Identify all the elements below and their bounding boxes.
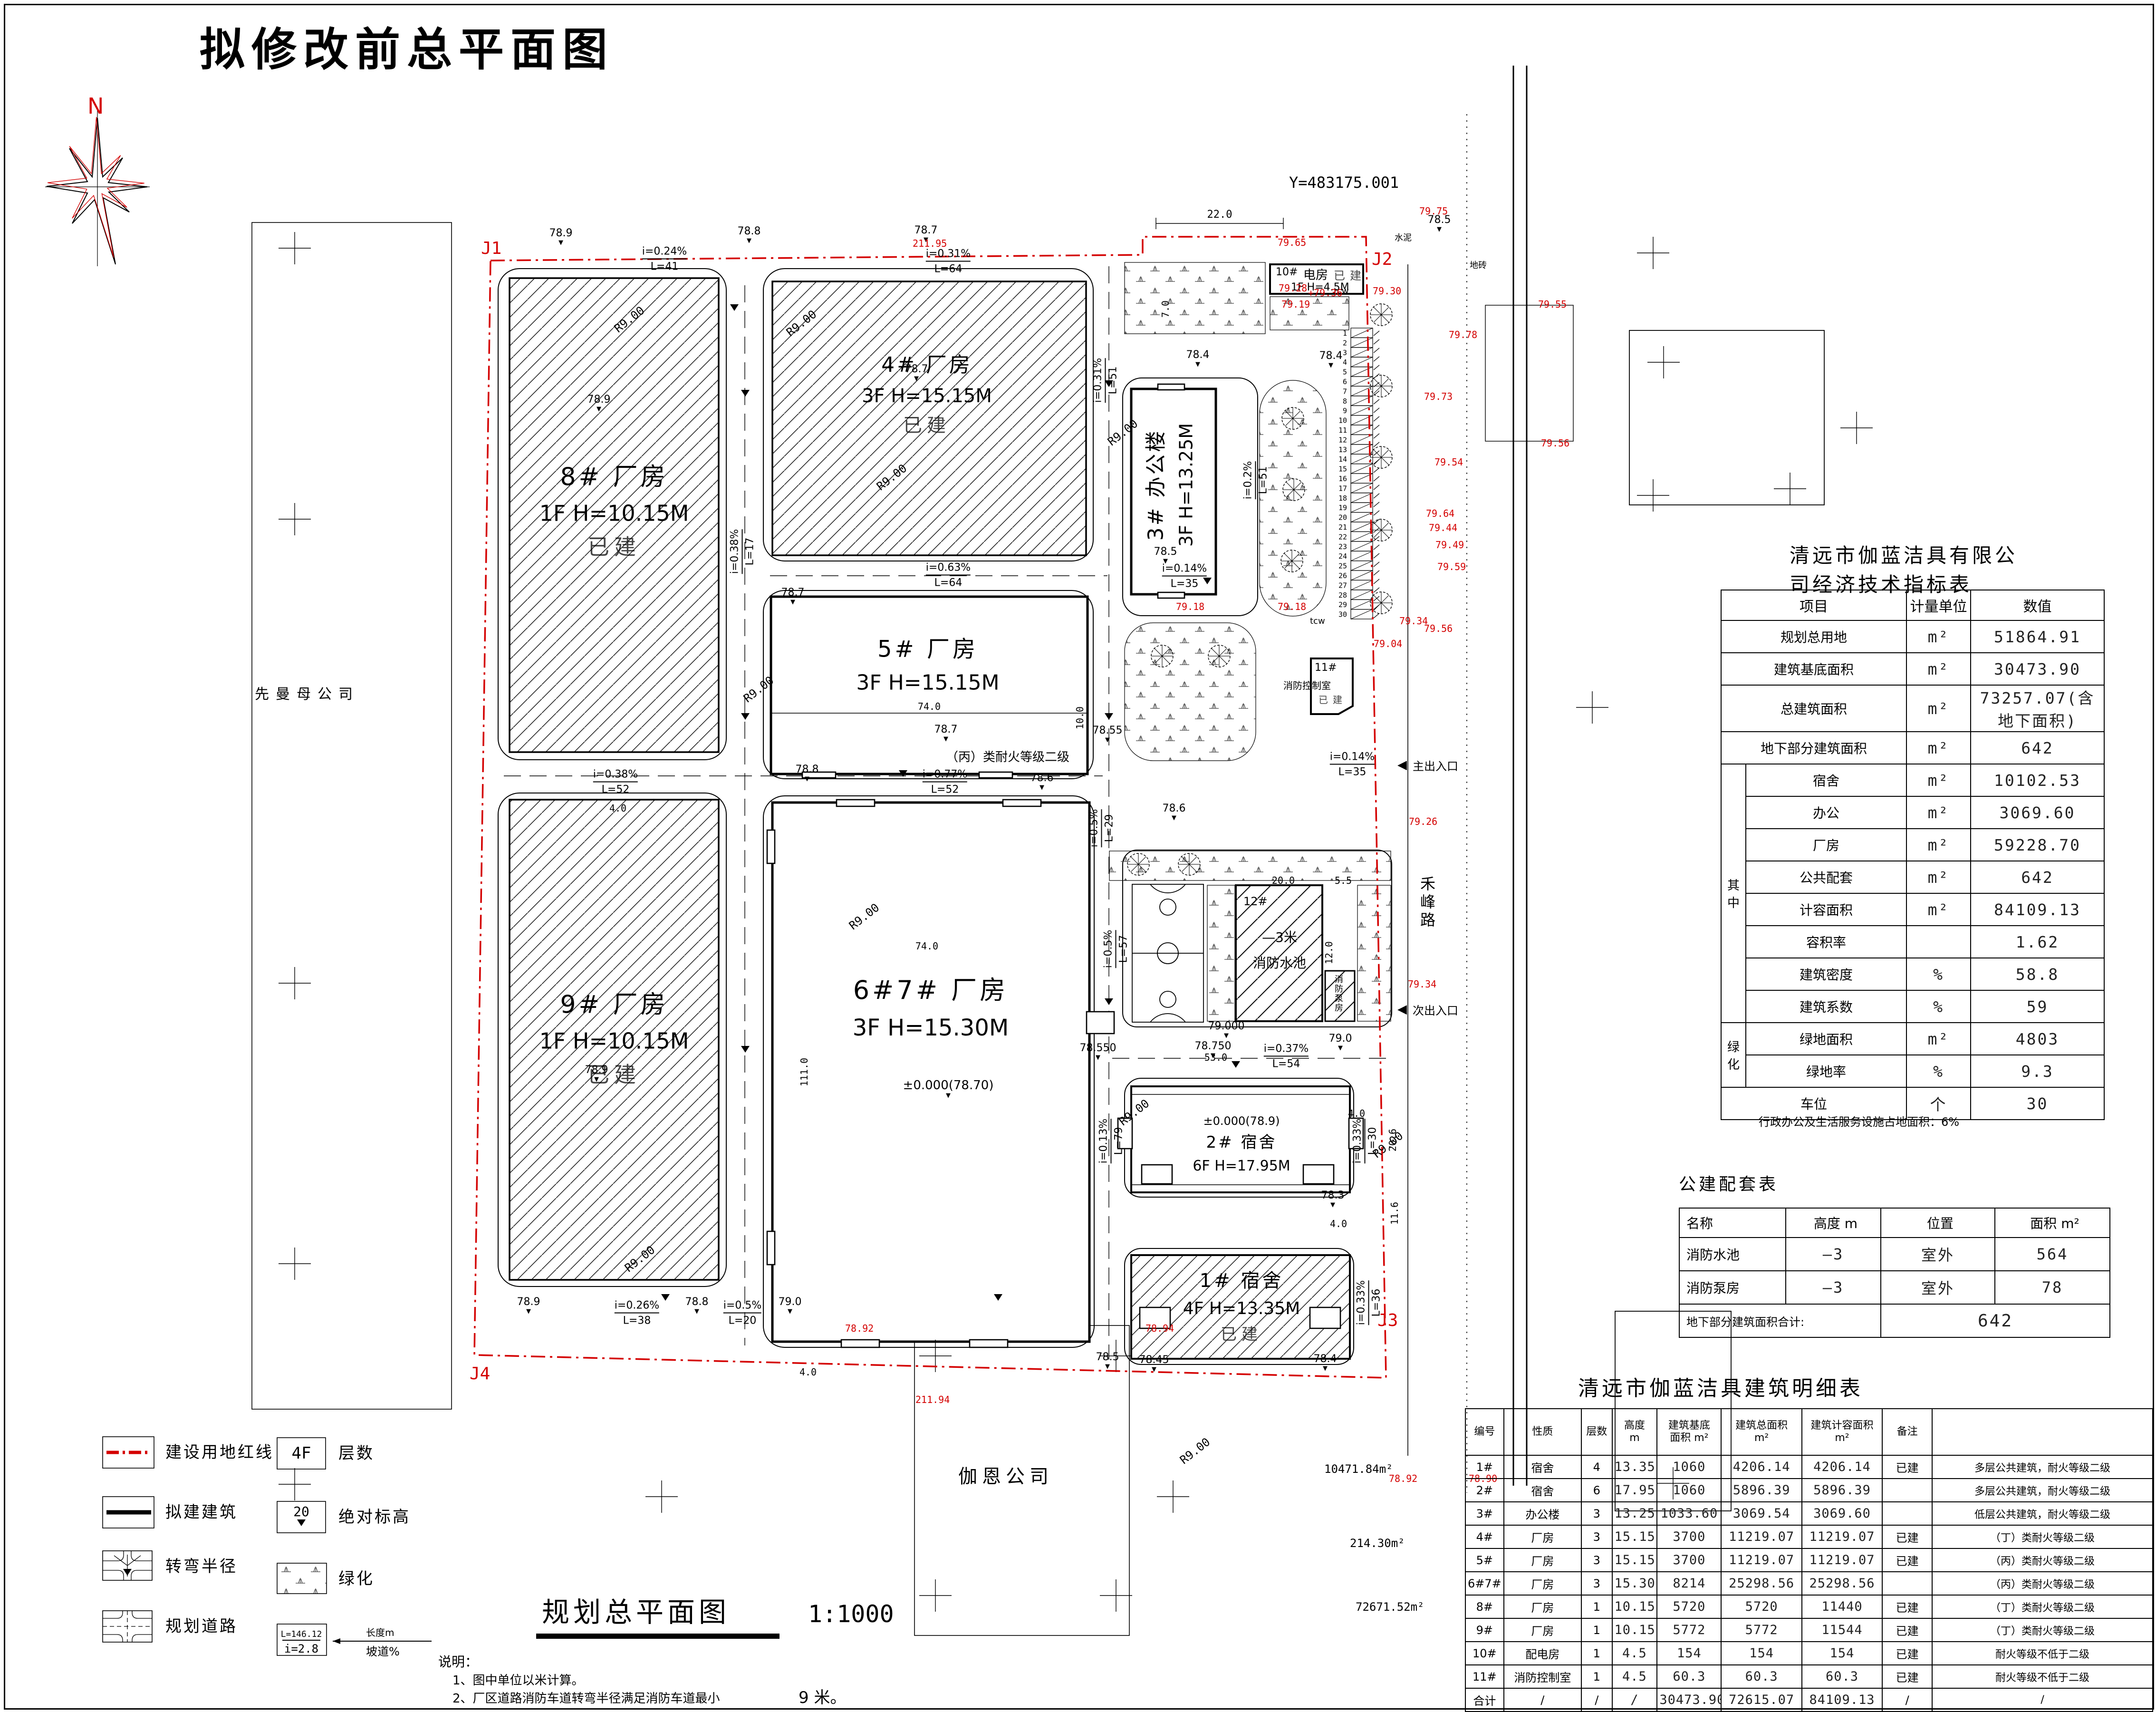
dimension: 4.0	[1348, 1109, 1365, 1118]
detail-cell: 耐火等级不低于二级	[1932, 1665, 2153, 1688]
public-cell: —3	[1786, 1271, 1881, 1304]
public-total-value: 642	[1881, 1304, 2110, 1337]
detail-row: 3#办公楼313.251033.603069.543069.60低层公共建筑，耐…	[1465, 1502, 2153, 1525]
slope-label: i=0.38%L=17	[729, 529, 757, 574]
slope-label: i=0.13%L=79	[1097, 1119, 1126, 1163]
detail-cell: 11219.07	[1721, 1525, 1801, 1548]
spot-elevation: 78.9▼	[585, 1065, 608, 1083]
detail-cell: 5772	[1721, 1618, 1801, 1642]
public-total-label: 地下部分建筑面积合计:	[1679, 1304, 1881, 1337]
detail-cell: 配电房	[1504, 1642, 1581, 1665]
econ-row: 绿化绿地面积m²4803	[1721, 1023, 2104, 1055]
econ-unit-cell: %	[1906, 958, 1971, 990]
detail-cell: （丁）类耐火等级二级	[1932, 1525, 2153, 1548]
detail-cell: 15.30	[1612, 1572, 1657, 1595]
econ-row: 建筑系数%59	[1721, 990, 2104, 1023]
building-6-7-zero-elevation: ±0.000(78.70)▼	[903, 1079, 994, 1099]
parking-stall-number: 1	[1343, 329, 1347, 338]
parking-stall-number: 13	[1338, 445, 1347, 454]
detail-row: 11#消防控制室14.560.360.360.3已建耐火等级不低于二级	[1465, 1665, 2153, 1688]
parking-stall-number: 5	[1343, 368, 1347, 377]
detail-table-title: 清远市伽蓝洁具建筑明细表	[1578, 1371, 1863, 1402]
econ-value-cell: 59228.70	[1971, 829, 2104, 861]
detail-cell: 3069.60	[1802, 1502, 1882, 1525]
detail-cell: 耐火等级不低于二级	[1932, 1642, 2153, 1665]
red-elevation: 78.92	[845, 1324, 874, 1333]
detail-cell: 3700	[1657, 1548, 1721, 1572]
building-11-status: 已建	[1319, 695, 1347, 705]
dimension: 20.6	[1388, 1129, 1397, 1151]
detail-cell	[1882, 1479, 1932, 1502]
parking-stall-number: 17	[1338, 484, 1347, 493]
detail-cell: 1	[1581, 1642, 1612, 1665]
site-plan-sheet: { "page": {"title": "拟修改前总平面图", "y_coord…	[0, 0, 2156, 1712]
parking-stall-number: 7	[1343, 387, 1347, 396]
building-10-name: 电房	[1303, 269, 1328, 281]
dimension: 4.0	[609, 803, 626, 813]
building-5-label: 5# 厂房 3F H=15.15M	[856, 632, 999, 700]
detail-cell: 84109.13	[1802, 1688, 1882, 1712]
detail-row: 8#厂房110.155720572011440已建（丁）类耐火等级二级	[1465, 1595, 2153, 1618]
econ-value-cell: 51864.91	[1971, 620, 2104, 653]
public-facility-table: 名称 高度 m 位置 面积 m² 消防水池—3室外564消防泵房—3室外78 地…	[1679, 1208, 2110, 1338]
detail-cell: /	[1882, 1688, 1932, 1712]
spot-elevation: 78.3▼	[1321, 1190, 1345, 1208]
plan-scale: 1:1000	[808, 1602, 894, 1626]
detail-cell: （丁）类耐火等级二级	[1932, 1595, 2153, 1618]
red-elevation: 79.55	[1538, 300, 1567, 309]
econ-value-cell: 642	[1971, 732, 2104, 764]
legend-symbols	[103, 1437, 432, 1655]
compass-north-label: N	[87, 95, 104, 117]
note-1: 1、图中单位以米计算。	[452, 1674, 584, 1687]
slope-label: i=0.31%L=51	[1092, 358, 1120, 403]
marker-j2: J2	[1372, 251, 1392, 268]
building-5-fire-rating: （丙）类耐火等级二级	[946, 751, 1069, 764]
red-elevation: 79.34	[1408, 979, 1436, 989]
detail-cell	[1882, 1502, 1932, 1525]
econ-value-cell: 9.3	[1971, 1055, 2104, 1087]
main-entrance-icon: ◀	[1397, 759, 1407, 771]
econ-item-cell: 公共配套	[1746, 861, 1906, 893]
secondary-entrance-label: 次出入口	[1413, 1005, 1458, 1016]
spot-elevation: 78.9▼	[549, 228, 573, 246]
public-total-row: 地下部分建筑面积合计: 642	[1679, 1304, 2110, 1337]
spot-elevation: 78.9▼	[587, 395, 611, 412]
detail-cell: 消防控制室	[1504, 1665, 1581, 1688]
spot-elevation: 78.7▼	[905, 364, 928, 382]
legend-elev-label: 绝对标高	[338, 1509, 411, 1525]
legend-green-label: 绿化	[338, 1571, 375, 1587]
spot-elevation: 79.0▼	[779, 1297, 802, 1315]
public-cell: 消防泵房	[1679, 1271, 1786, 1304]
west-neighbor-lot	[252, 222, 452, 1409]
detail-cell: 宿舍	[1504, 1455, 1581, 1479]
dimension: 11.6	[1390, 1202, 1399, 1225]
detail-cell: 25298.56	[1802, 1572, 1882, 1595]
detail-cell: 多层公共建筑，耐火等级二级	[1932, 1479, 2153, 1502]
detail-header-cell: 建筑基底 面积 m²	[1657, 1409, 1721, 1455]
detail-cell: 低层公共建筑，耐火等级二级	[1932, 1502, 2153, 1525]
dimension: 20.0	[1272, 876, 1295, 885]
detail-row: 6#7#厂房315.30821425298.5625298.56（丙）类耐火等级…	[1465, 1572, 2153, 1595]
detail-cell: 25298.56	[1721, 1572, 1801, 1595]
slope-label: i=0.63%L=64	[926, 561, 971, 590]
detail-cell: /	[1504, 1688, 1581, 1712]
detail-cell: （丙）类耐火等级二级	[1932, 1572, 2153, 1595]
spot-elevation: 79.000▼	[1208, 1021, 1245, 1039]
spot-elevation: 78.6▼	[1163, 803, 1186, 821]
retaining-wall-ticks	[1374, 331, 1379, 618]
detail-cell: 4	[1581, 1455, 1612, 1479]
detail-cell: 5772	[1657, 1618, 1721, 1642]
econ-unit-cell: m²	[1906, 829, 1971, 861]
econ-table-footnote: 行政办公及生活服务设施占地面积：6%	[1759, 1116, 1959, 1128]
detail-cell: 1060	[1657, 1479, 1721, 1502]
red-elevation: 79.75	[1419, 206, 1448, 216]
parking-stall-number: 29	[1338, 600, 1347, 609]
econ-unit-cell: m²	[1906, 893, 1971, 926]
building-10-id: 10#	[1276, 267, 1298, 278]
econ-item-cell: 绿地率	[1746, 1055, 1906, 1087]
econ-item-cell: 建筑系数	[1746, 990, 1906, 1023]
detail-cell: 11219.07	[1721, 1548, 1801, 1572]
econ-value-cell: 3069.60	[1971, 796, 2104, 829]
parking-stall-number: 22	[1338, 532, 1347, 541]
detail-cell: 3069.54	[1721, 1502, 1801, 1525]
parking-stall-number: 15	[1338, 465, 1347, 474]
slope-label: i=0.31%L=64	[926, 248, 971, 276]
econ-item-cell: 宿舍	[1746, 764, 1906, 796]
red-boundary-length: 211.94	[915, 1395, 950, 1404]
building-12-name: 消防水池	[1253, 957, 1306, 970]
red-elevation: 79.78	[1449, 330, 1477, 339]
red-elevation: 79.04	[1374, 639, 1402, 648]
tcw-label-2: tcw	[1310, 617, 1325, 626]
slope-label: i=0.38%L=52	[593, 768, 638, 796]
red-elevation: 78.92	[1389, 1474, 1417, 1483]
detail-cell: 1033.60	[1657, 1502, 1721, 1525]
red-elevation: 79.65	[1278, 238, 1306, 247]
detail-cell: 5896.39	[1721, 1479, 1801, 1502]
detail-cell: 已建	[1882, 1595, 1932, 1618]
spot-elevation: 78.4▼	[1319, 351, 1343, 368]
spot-elevation: 78.45▼	[1139, 1355, 1169, 1373]
main-entrance-label: 主出入口	[1413, 761, 1458, 772]
econ-group-cell: 其中	[1721, 764, 1746, 1023]
detail-cell: 已建	[1882, 1455, 1932, 1479]
parking-stall-number: 23	[1338, 542, 1347, 551]
parking-stalls: 1234567891011121314151617181920212223242…	[1338, 328, 1373, 619]
red-elevation: 79.26	[1409, 817, 1437, 826]
detail-cell: 厂房	[1504, 1548, 1581, 1572]
red-elevation: 79.30	[1373, 286, 1401, 296]
compass-rose	[45, 110, 150, 266]
econ-unit-cell: m²	[1906, 620, 1971, 653]
detail-cell: 4.5	[1612, 1642, 1657, 1665]
dimension: 53.0	[1204, 1053, 1227, 1062]
legend-building-label: 拟建建筑	[165, 1504, 238, 1520]
parking-stall-number: 14	[1338, 455, 1347, 464]
detail-cell: 厂房	[1504, 1595, 1581, 1618]
econ-item-cell: 建筑基底面积	[1721, 653, 1906, 685]
econ-unit-cell: m²	[1906, 764, 1971, 796]
dimension: 111.0	[799, 1058, 809, 1086]
detail-cell: 3#	[1465, 1502, 1504, 1525]
notes-heading: 说明：	[438, 1655, 478, 1669]
economic-indicator-table: 项目 计量单位 数值 规划总用地m²51864.91建筑基底面积m²30473.…	[1721, 590, 2105, 1120]
spot-elevation: 78.8▼	[738, 226, 761, 244]
econ-row: 其中宿舍m²10102.53	[1721, 764, 2104, 796]
parking-stall-number: 10	[1338, 416, 1347, 425]
dimension: 5.5	[1335, 876, 1352, 885]
building-1-label: 1# 宿舍 4F H=13.35M 已建	[1183, 1266, 1300, 1347]
detail-cell: /	[1932, 1688, 2153, 1712]
detail-cell: /	[1581, 1688, 1612, 1712]
detail-cell: 8214	[1657, 1572, 1721, 1595]
red-elevation: 79.28	[1279, 283, 1307, 293]
parking-stall-number: 12	[1338, 435, 1347, 444]
econ-header-value: 数值	[1971, 590, 2104, 620]
econ-row: 办公m²3069.60	[1721, 796, 2104, 829]
detail-header-cell: 层数	[1581, 1409, 1612, 1455]
red-elevation: 79.18	[1176, 602, 1204, 611]
parking-stall-number: 8	[1343, 397, 1347, 406]
detail-cell: 15.15	[1612, 1548, 1657, 1572]
econ-row: 总建筑面积m²73257.07(含地下面积)	[1721, 685, 2104, 732]
spot-elevation: 78.8▼	[796, 764, 819, 782]
econ-value-cell: 1.62	[1971, 926, 2104, 958]
econ-item-cell: 厂房	[1746, 829, 1906, 861]
detail-cell: 15.15	[1612, 1525, 1657, 1548]
red-elevation: 78.94	[1145, 1324, 1174, 1333]
spot-elevation: 78.7▼	[781, 588, 805, 605]
spot-elevation: 79.0▼	[1329, 1034, 1352, 1051]
building-10-status: 已建	[1334, 270, 1366, 281]
detail-cell: 154	[1802, 1642, 1882, 1665]
detail-cell: 60.3	[1721, 1665, 1801, 1688]
building-12-depth: —3米	[1262, 931, 1297, 944]
red-elevation: 79.64	[1426, 509, 1454, 518]
econ-item-cell: 计容面积	[1746, 893, 1906, 926]
marker-j1: J1	[481, 240, 501, 257]
spot-elevation: 78.5▼	[1096, 1352, 1119, 1370]
red-elevation: 79.73	[1424, 392, 1453, 401]
detail-row: 2#宿舍617.9510605896.395896.39多层公共建筑，耐火等级二…	[1465, 1479, 2153, 1502]
detail-cell: 5720	[1721, 1595, 1801, 1618]
detail-cell: （丙）类耐火等级二级	[1932, 1548, 2153, 1572]
note-2-value: 9 米。	[799, 1690, 846, 1706]
econ-value-cell: 10102.53	[1971, 764, 2104, 796]
detail-cell: 13.35	[1612, 1455, 1657, 1479]
parking-stall-number: 30	[1338, 610, 1347, 619]
detail-cell: 4206.14	[1802, 1455, 1882, 1479]
econ-unit-cell: m²	[1906, 1023, 1971, 1055]
legend-slope-bottom: i=2.8	[284, 1643, 318, 1654]
econ-value-cell: 59	[1971, 990, 2104, 1023]
parking-stall-number: 26	[1338, 571, 1347, 580]
secondary-entrance-icon: ◀	[1397, 1003, 1407, 1016]
legend-grade-label: 坡道%	[366, 1646, 400, 1657]
detail-cell: 1	[1581, 1665, 1612, 1688]
detail-cell: 4206.14	[1721, 1455, 1801, 1479]
slope-label: i=0.14%L=35	[1330, 751, 1375, 779]
building-6-7-label: 6#7# 厂房 3F H=15.30M	[853, 970, 1009, 1045]
slope-label: i=0.2%L=51	[1242, 461, 1270, 499]
dimension: 22.0	[1207, 210, 1232, 220]
detail-cell: （丁）类耐火等级二级	[1932, 1618, 2153, 1642]
econ-item-cell: 规划总用地	[1721, 620, 1906, 653]
parking-stall-number: 27	[1338, 581, 1347, 590]
parking-stall-number: 24	[1338, 552, 1347, 561]
detail-header-cell	[1932, 1409, 2153, 1455]
detail-cell: 办公楼	[1504, 1502, 1581, 1525]
detail-cell: 已建	[1882, 1665, 1932, 1688]
detail-cell: 厂房	[1504, 1618, 1581, 1642]
econ-item-cell: 总建筑面积	[1721, 685, 1906, 732]
building-11-name: 消防控制室	[1283, 681, 1331, 690]
parking-stall-number: 11	[1338, 426, 1347, 435]
detail-row: 4#厂房315.15370011219.0711219.07已建（丁）类耐火等级…	[1465, 1525, 2153, 1548]
econ-unit-cell: m²	[1906, 685, 1971, 732]
detail-cell: 11544	[1802, 1618, 1882, 1642]
building-detail-table: 编号性质层数高度 m建筑基底 面积 m²建筑总面积 m²建筑计容面积 m²备注 …	[1465, 1408, 2153, 1712]
building-8-label: 8# 厂房 1F H=10.15M 已建	[539, 458, 689, 564]
basketball-court	[1132, 884, 1203, 1022]
detail-cell: 2#	[1465, 1479, 1504, 1502]
slope-label: i=0.5%L=57	[1102, 930, 1130, 968]
detail-cell: 11440	[1802, 1595, 1882, 1618]
econ-value-cell: 30	[1971, 1087, 2104, 1120]
econ-row: 建筑基底面积m²30473.90	[1721, 653, 2104, 685]
building-9-label: 9# 厂房 1F H=10.15M 已建	[539, 986, 689, 1092]
parking-stall-number: 21	[1338, 523, 1347, 532]
spot-elevation: 78.4▼	[1186, 350, 1210, 368]
building-12-pump-label: 消防泵房	[1334, 975, 1342, 1013]
detail-cell: 60.3	[1657, 1665, 1721, 1688]
area-label: 214.30m²	[1350, 1538, 1405, 1549]
parking-stall-number: 20	[1338, 513, 1347, 522]
econ-item-cell: 车位	[1721, 1087, 1906, 1120]
public-header-location: 位置	[1881, 1208, 1995, 1238]
parking-stall-number: 2	[1343, 339, 1347, 347]
spot-elevation: 78.5▼	[1428, 215, 1451, 232]
dimension: 4.0	[1330, 1219, 1347, 1228]
detail-cell: 已建	[1882, 1525, 1932, 1548]
detail-cell: 3	[1581, 1572, 1612, 1595]
econ-group-cell: 绿化	[1721, 1023, 1746, 1087]
public-table-title: 公建配套表	[1679, 1170, 1779, 1195]
parking-stall-number: 28	[1338, 591, 1347, 600]
detail-cell: 3700	[1657, 1525, 1721, 1548]
parking-stall-number: 9	[1343, 406, 1347, 415]
dimension: 74.0	[915, 941, 938, 951]
dimension: 4.0	[799, 1367, 817, 1377]
parking-stall-number: 16	[1338, 474, 1347, 483]
econ-header-row: 项目 计量单位 数值	[1721, 590, 2104, 620]
econ-table-title: 清远市伽蓝洁具有限公司经济技术指标表	[1790, 540, 2034, 598]
detail-cell: 3	[1581, 1502, 1612, 1525]
legend-floors-label: 层数	[338, 1445, 375, 1461]
econ-row: 厂房m²59228.70	[1721, 829, 2104, 861]
detail-cell: 1	[1581, 1618, 1612, 1642]
legend-slope-top: L=146.12	[281, 1630, 322, 1639]
legend-length-label: 长度m	[366, 1628, 394, 1637]
parking-stall-number: 4	[1343, 358, 1347, 367]
red-elevation: 79.59	[1437, 562, 1466, 571]
econ-item-cell: 建筑密度	[1746, 958, 1906, 990]
detail-cell: 5#	[1465, 1548, 1504, 1572]
red-elevation: 79.56	[1424, 624, 1453, 633]
econ-row: 建筑密度%58.8	[1721, 958, 2104, 990]
detail-cell: 10.15	[1612, 1618, 1657, 1642]
detail-cell: 11219.07	[1802, 1525, 1882, 1548]
red-elevation: 79.54	[1434, 457, 1463, 467]
econ-unit-cell: m²	[1906, 796, 1971, 829]
econ-item-cell: 办公	[1746, 796, 1906, 829]
public-cell: 室外	[1881, 1271, 1995, 1304]
detail-row: 5#厂房315.15370011219.0711219.07已建（丙）类耐火等级…	[1465, 1548, 2153, 1572]
spot-elevation: 78.5▼	[1154, 547, 1177, 564]
detail-cell: 11219.07	[1802, 1548, 1882, 1572]
red-elevation: 79.18	[1278, 602, 1306, 611]
parking-stall-number: 19	[1338, 503, 1347, 512]
detail-cell: 10#	[1465, 1642, 1504, 1665]
detail-cell: 厂房	[1504, 1572, 1581, 1595]
building-12-id: 12#	[1243, 896, 1268, 907]
legend-elev-symbol: 20	[293, 1505, 309, 1519]
spot-elevation: 78.55▼	[1093, 725, 1123, 743]
parking-stall-number: 18	[1338, 494, 1347, 503]
area-label: 72671.52m²	[1356, 1601, 1424, 1613]
surface-cement-label: 水泥	[1395, 234, 1412, 242]
dimension: 7.0	[1161, 300, 1170, 318]
econ-unit-cell: m²	[1906, 861, 1971, 893]
econ-row: 规划总用地m²51864.91	[1721, 620, 2104, 653]
detail-cell: 154	[1657, 1642, 1721, 1665]
econ-row: 绿地率%9.3	[1721, 1055, 2104, 1087]
building-3-label: 3# 办公楼 3F H=13.25M	[1140, 423, 1200, 547]
detail-cell: 宿舍	[1504, 1479, 1581, 1502]
surface-brick-label: 地砖	[1470, 261, 1487, 270]
econ-row: 公共配套m²642	[1721, 861, 2104, 893]
detail-header-cell: 建筑总面积 m²	[1721, 1409, 1801, 1455]
red-elevation: 79.56	[1541, 438, 1569, 448]
detail-cell: 6#7#	[1465, 1572, 1504, 1595]
slope-label: i=0.33%L=30	[1351, 1119, 1379, 1163]
dimension: 10.0	[1075, 706, 1085, 729]
spot-elevation: 78.7▼	[934, 725, 958, 742]
econ-unit-cell: %	[1906, 990, 1971, 1023]
detail-cell: 4.5	[1612, 1665, 1657, 1688]
econ-unit-cell: m²	[1906, 732, 1971, 764]
east-block-b	[1629, 330, 1824, 505]
econ-value-cell: 58.8	[1971, 958, 2104, 990]
parking-stall-number: 6	[1343, 377, 1347, 386]
detail-row: 10#配电房14.5154154154已建耐火等级不低于二级	[1465, 1642, 2153, 1665]
public-cell: 564	[1995, 1238, 2110, 1271]
econ-unit-cell: m²	[1906, 653, 1971, 685]
detail-cell: 4#	[1465, 1525, 1504, 1548]
caption-underline	[536, 1634, 780, 1639]
red-elevation: 79.49	[1435, 540, 1464, 550]
detail-cell: 已建	[1882, 1618, 1932, 1642]
spot-elevation: 78.8▼	[685, 1297, 709, 1315]
public-cell: 78	[1995, 1271, 2110, 1304]
detail-row: 合计///30473.9072615.0784109.13//	[1465, 1688, 2153, 1712]
detail-cell: 厂房	[1504, 1525, 1581, 1548]
detail-cell: 已建	[1882, 1548, 1932, 1572]
